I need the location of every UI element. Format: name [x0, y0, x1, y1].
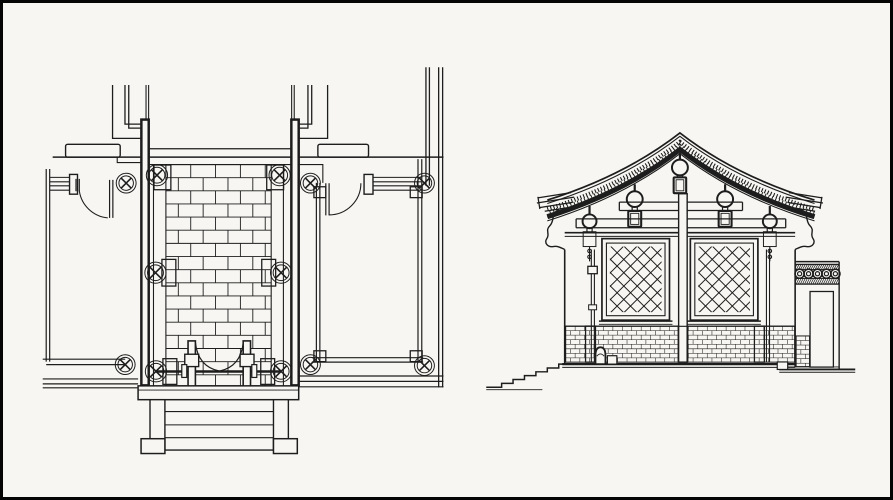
center-post: [679, 194, 688, 362]
left-room-bottom: [43, 359, 125, 364]
plan-walls: [53, 67, 444, 387]
room-bottom-edge: [312, 358, 423, 362]
wing-wall-right: [299, 376, 444, 387]
elevation-overlays: [486, 194, 855, 390]
hatch-line: [840, 265, 843, 270]
ring-inner: [824, 272, 828, 276]
step-block-right: [273, 439, 297, 454]
ring-outer: [822, 269, 831, 278]
gate-post-right: [291, 120, 298, 386]
column-pad: [162, 259, 176, 286]
wall-far-right: [426, 67, 443, 387]
drawing-canvas: [3, 3, 890, 497]
wall-top-right: [299, 85, 328, 138]
scanned-architectural-drawing: [0, 0, 893, 500]
gate-mullions: [146, 85, 294, 120]
ring-outer: [813, 269, 822, 278]
plan-side-doors: [46, 169, 421, 362]
passage-frame-lines: [153, 165, 283, 388]
wing-wall-left: [43, 379, 138, 388]
plan-column: [300, 173, 320, 193]
ring-inner: [833, 272, 837, 276]
ring-inner: [815, 272, 819, 276]
plan-column: [300, 355, 320, 375]
wall-jog-left: [117, 157, 141, 162]
garden-wall-step: [777, 362, 787, 370]
hanging-column: [672, 153, 688, 194]
ring-inner: [798, 272, 802, 276]
rod-block-left: [182, 365, 187, 378]
eave-tip-left: [536, 191, 576, 249]
step-block-left: [141, 439, 165, 454]
wall-stub-left: [50, 177, 70, 190]
door-leaf-arcs: [195, 342, 243, 371]
lattice-line: [544, 247, 610, 313]
plan-column: [270, 262, 291, 283]
pier-left: [66, 144, 121, 157]
hanger-pendant-black: [763, 232, 776, 247]
stub-cap-right: [364, 174, 373, 194]
stone-block: [607, 356, 616, 364]
pier-right: [318, 144, 369, 157]
hanger-bead: [717, 191, 733, 207]
step-platform: [138, 386, 299, 400]
lattice-window: [632, 239, 805, 321]
plan-entrance-steps: [138, 386, 299, 454]
hanging-column: [717, 184, 733, 226]
hanging-column: [627, 184, 643, 226]
pipe-clamp: [589, 305, 597, 310]
lattice-line: [544, 247, 610, 313]
hanger-pendant-inner: [676, 180, 684, 191]
plan-column: [115, 355, 135, 375]
plan-column: [116, 173, 136, 193]
hanger-bead: [627, 191, 643, 207]
window-lattice: [632, 247, 805, 313]
door-swing-arc-right: [329, 183, 361, 215]
garden-wall-ring-band: [795, 269, 840, 278]
rod-block-right: [252, 365, 257, 378]
plan-column: [415, 173, 435, 193]
plan-brick-paving: [166, 165, 271, 386]
ring-inner: [806, 272, 810, 276]
door-swing-arc-left: [79, 191, 108, 218]
plan-center-doors: [156, 341, 282, 386]
hatch-line: [840, 279, 843, 284]
floor-plan: [43, 67, 444, 453]
eave-tip-right: [784, 191, 824, 249]
hanger-bead: [672, 160, 688, 176]
hanger-bead: [763, 214, 777, 228]
paving-area: [166, 165, 271, 386]
plan-column: [269, 165, 290, 186]
hanging-column: [763, 206, 777, 261]
ring-outer: [804, 269, 813, 278]
entrance-steps: [486, 364, 570, 387]
hanger-pendant-black: [583, 232, 596, 247]
ring-outer: [795, 269, 804, 278]
plan-column: [415, 356, 435, 376]
wall-top-left: [113, 85, 142, 138]
gate-post-left: [141, 120, 148, 386]
left-room-wall: [46, 169, 49, 362]
wall-stub-right: [373, 177, 421, 190]
hanger-bead: [583, 214, 597, 228]
hatch-lines: [792, 279, 843, 284]
garden-wall-hatch-bands: [792, 265, 843, 284]
plan-columns: [115, 165, 434, 382]
pipe-collar: [588, 266, 597, 273]
step-treads: [165, 412, 274, 438]
side-elevation: [486, 133, 855, 390]
garden-wall-pilaster: [810, 291, 833, 367]
